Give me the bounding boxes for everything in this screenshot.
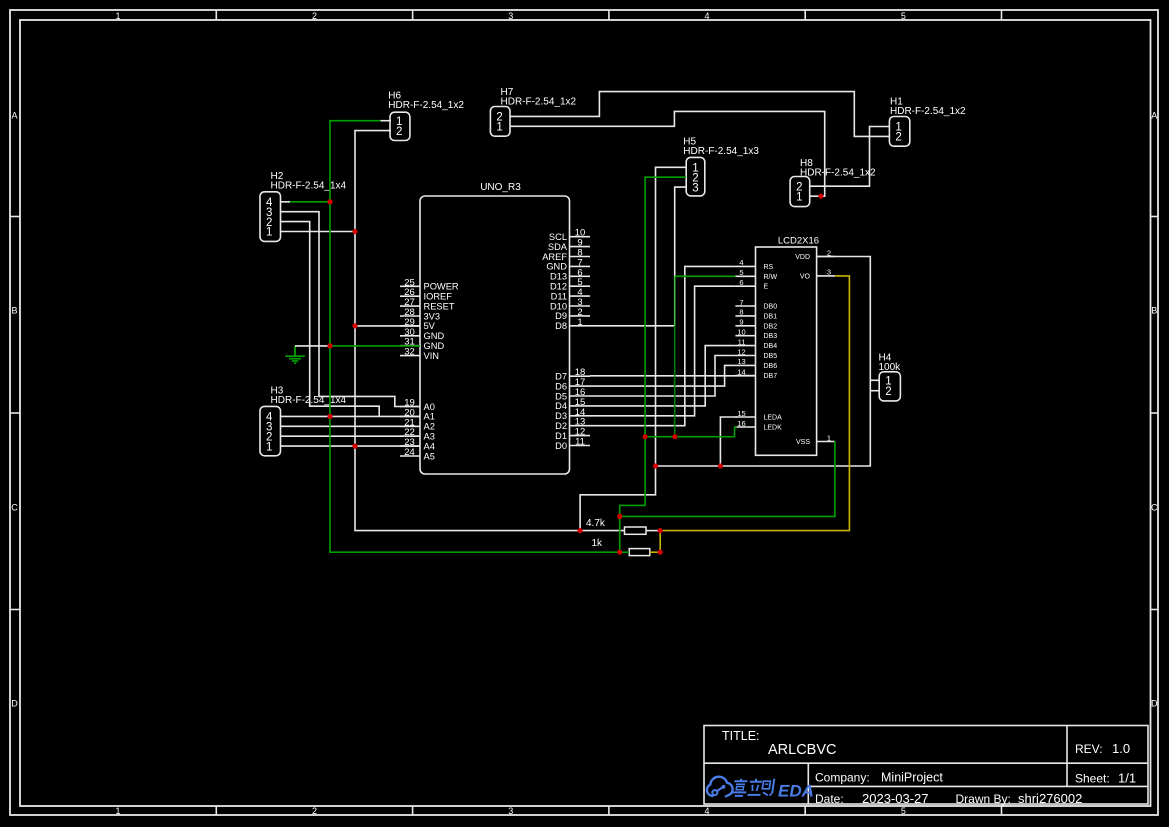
svg-text:HDR-F-2.54_1x2: HDR-F-2.54_1x2: [800, 168, 876, 179]
svg-text:5: 5: [901, 806, 906, 816]
svg-text:C: C: [1151, 502, 1158, 512]
svg-text:3: 3: [692, 182, 698, 194]
svg-text:10: 10: [737, 328, 745, 337]
svg-text:3: 3: [827, 268, 831, 277]
svg-text:100k: 100k: [879, 362, 902, 373]
svg-text:D9: D9: [555, 311, 567, 321]
svg-text:4.7k: 4.7k: [586, 518, 606, 529]
svg-text:SDA: SDA: [548, 242, 568, 252]
svg-text:16: 16: [737, 419, 745, 428]
svg-text:A3: A3: [424, 432, 435, 442]
svg-text:IOREF: IOREF: [424, 292, 453, 302]
svg-text:2: 2: [885, 386, 891, 398]
svg-text:15: 15: [737, 409, 745, 418]
svg-text:1: 1: [115, 11, 120, 21]
svg-text:LEDA: LEDA: [764, 415, 783, 422]
svg-text:MiniProject: MiniProject: [881, 771, 943, 785]
svg-text:DB3: DB3: [764, 333, 778, 340]
svg-text:D: D: [1151, 698, 1158, 708]
svg-text:D12: D12: [550, 282, 567, 292]
svg-text:D10: D10: [550, 301, 567, 311]
svg-text:E: E: [764, 284, 769, 291]
svg-text:1: 1: [496, 122, 502, 134]
svg-text:D8: D8: [555, 321, 567, 331]
svg-text:24: 24: [404, 447, 415, 458]
svg-text:D1: D1: [555, 431, 567, 441]
svg-text:4: 4: [704, 11, 709, 21]
svg-text:DB0: DB0: [764, 304, 778, 311]
svg-text:VO: VO: [800, 273, 811, 280]
svg-text:1: 1: [266, 441, 272, 453]
svg-text:LCD2X16: LCD2X16: [778, 236, 819, 247]
svg-text:11: 11: [575, 437, 585, 448]
svg-text:VSS: VSS: [796, 439, 810, 446]
svg-text:4: 4: [704, 806, 709, 816]
svg-text:AREF: AREF: [542, 252, 567, 262]
svg-text:D11: D11: [551, 291, 567, 301]
svg-text:VIN: VIN: [424, 351, 440, 361]
svg-text:D13: D13: [550, 272, 567, 282]
svg-text:Company:: Company:: [815, 771, 870, 785]
svg-text:A: A: [11, 110, 17, 120]
svg-text:ARLCBVC: ARLCBVC: [768, 742, 837, 758]
svg-text:VDD: VDD: [795, 254, 810, 261]
svg-text:32: 32: [404, 347, 415, 358]
svg-text:2023-03-27: 2023-03-27: [862, 791, 929, 806]
svg-text:D0: D0: [555, 441, 567, 451]
svg-text:A0: A0: [424, 402, 435, 412]
svg-text:DB1: DB1: [764, 313, 778, 320]
svg-text:12: 12: [737, 347, 745, 356]
svg-text:DB2: DB2: [764, 323, 778, 330]
svg-text:DB6: DB6: [764, 363, 778, 370]
svg-text:1: 1: [115, 806, 120, 816]
svg-text:A2: A2: [424, 422, 435, 432]
svg-text:D7: D7: [555, 372, 567, 382]
svg-text:5V: 5V: [424, 321, 436, 331]
svg-text:D: D: [11, 698, 18, 708]
svg-text:B: B: [11, 305, 17, 315]
svg-text:EDA: EDA: [778, 782, 814, 801]
svg-text:A1: A1: [424, 412, 435, 422]
svg-text:2: 2: [895, 132, 901, 144]
svg-text:TITLE:: TITLE:: [722, 729, 760, 743]
svg-text:5: 5: [739, 268, 743, 277]
svg-text:Drawn By:: Drawn By:: [956, 792, 1011, 806]
svg-text:8: 8: [739, 308, 743, 317]
svg-text:3: 3: [508, 806, 513, 816]
svg-text:1: 1: [827, 433, 831, 442]
svg-text:14: 14: [737, 367, 745, 376]
svg-text:REV:: REV:: [1075, 742, 1103, 756]
svg-text:3V3: 3V3: [424, 311, 441, 321]
svg-text:1: 1: [577, 317, 582, 328]
svg-text:2: 2: [312, 806, 317, 816]
svg-text:2: 2: [396, 126, 402, 138]
svg-text:DB4: DB4: [764, 343, 778, 350]
svg-text:6: 6: [739, 278, 743, 287]
svg-text:HDR-F-2.54_1x4: HDR-F-2.54_1x4: [271, 181, 347, 192]
svg-text:D2: D2: [555, 421, 567, 431]
svg-text:1: 1: [266, 227, 272, 239]
svg-text:HDR-F-2.54_1x3: HDR-F-2.54_1x3: [683, 146, 759, 157]
svg-text:Date:: Date:: [815, 792, 844, 806]
svg-text:UNO_R3: UNO_R3: [480, 182, 521, 193]
svg-text:7: 7: [739, 298, 743, 307]
svg-text:DB7: DB7: [764, 373, 778, 380]
svg-text:HDR-F-2.54_1x2: HDR-F-2.54_1x2: [890, 106, 966, 117]
svg-text:4: 4: [739, 258, 743, 267]
svg-text:RESET: RESET: [424, 301, 455, 311]
svg-text:B: B: [1151, 305, 1157, 315]
svg-text:HDR-F-2.54_1x2: HDR-F-2.54_1x2: [388, 100, 464, 111]
svg-text:RS: RS: [764, 264, 774, 271]
svg-text:Sheet:: Sheet:: [1075, 772, 1110, 786]
svg-text:POWER: POWER: [424, 282, 459, 292]
svg-text:C: C: [11, 502, 18, 512]
svg-text:GND: GND: [424, 331, 445, 341]
svg-text:D5: D5: [555, 391, 567, 401]
svg-text:D3: D3: [555, 411, 567, 421]
svg-text:1k: 1k: [592, 538, 604, 549]
svg-text:3: 3: [508, 11, 513, 21]
svg-text:R/W: R/W: [764, 274, 778, 281]
svg-text:5: 5: [901, 11, 906, 21]
svg-text:13: 13: [737, 357, 745, 366]
svg-text:SCL: SCL: [549, 232, 567, 242]
svg-text:D4: D4: [555, 401, 567, 411]
svg-text:11: 11: [738, 337, 746, 346]
svg-text:D6: D6: [555, 381, 567, 391]
svg-text:LEDK: LEDK: [764, 425, 783, 432]
svg-text:GND: GND: [546, 262, 567, 272]
svg-text:A: A: [1151, 110, 1157, 120]
svg-text:HDR-F-2.54_1x2: HDR-F-2.54_1x2: [501, 97, 577, 108]
svg-text:DB5: DB5: [764, 353, 778, 360]
svg-text:A4: A4: [424, 441, 435, 451]
svg-text:1/1: 1/1: [1118, 771, 1136, 786]
svg-text:shri276002: shri276002: [1018, 791, 1082, 806]
svg-text:1.0: 1.0: [1112, 741, 1130, 756]
svg-text:2: 2: [312, 11, 317, 21]
svg-text:A5: A5: [424, 451, 435, 461]
svg-text:1: 1: [796, 191, 802, 203]
svg-text:GND: GND: [424, 341, 445, 351]
svg-text:9: 9: [739, 318, 743, 327]
